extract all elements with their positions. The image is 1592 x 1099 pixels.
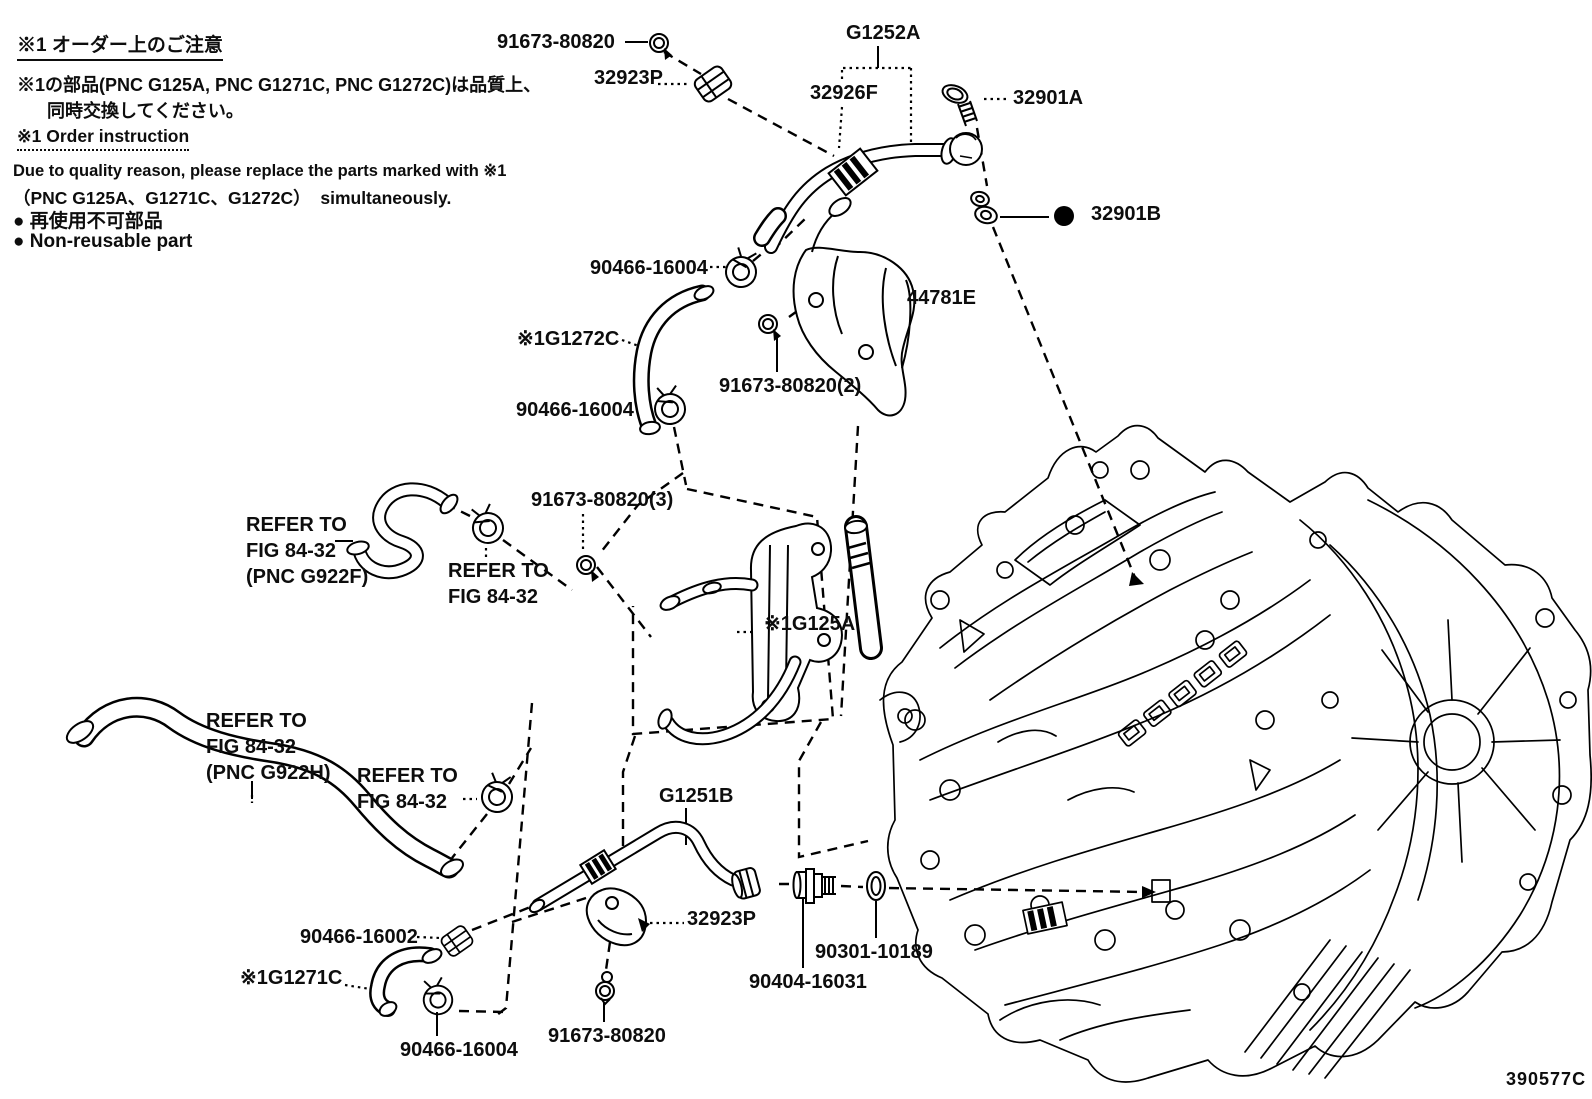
clamp-icon-90466-16004-c [419,975,456,1017]
part-label-90466-16002: 90466-16002 [300,926,418,949]
refer-note-mid: REFER TO FIG 84-32 [448,558,549,610]
part-label-g1251b: G1251B [659,785,734,808]
hose-g1271c [377,946,443,1018]
refer-note-g922f: REFER TO FIG 84-32 (PNC G922F) [246,512,368,590]
part-label-90466-16004-b: 90466-16004 [516,399,634,422]
note-jp-line2: 同時交換してください。 [47,97,244,123]
bracket-32923p-bottom [587,888,650,945]
part-label-90404-16031: 90404-16031 [749,971,867,994]
clamp-icon-refer-bottom [480,772,516,815]
clamp-icon-90466-16004-a [723,246,762,290]
part-label-44781e: 44781E [907,287,976,310]
washer-icons-32901b [969,190,998,226]
figure-number: 390577C [1506,1069,1586,1090]
transmission-illustration [880,426,1591,1082]
clamp-icon-32923p-top [692,64,733,104]
part-label-91673-80820-top: 91673-80820 [497,31,615,54]
bolt-icon-32901a [940,82,977,126]
part-label-g1272c: ※1G1272C [517,328,619,351]
part-label-90466-16004-a: 90466-16004 [590,257,708,280]
non-reusable-bullet-32901b [1054,206,1074,226]
part-label-32901a: 32901A [1013,87,1083,110]
union-fitting-90404-16031 [794,869,837,903]
part-label-90301-10189: 90301-10189 [815,941,933,964]
bolt-icon-3 [577,556,599,582]
note-jp-line1: ※1の部品(PNC G125A, PNC G1271C, PNC G1272C)… [17,71,541,97]
bolt-icon-top [650,34,672,60]
bolt-icon-bottom [596,972,614,1004]
part-label-32923p-bottom: 32923P [687,908,756,931]
part-label-32926f: 32926F [810,82,878,105]
note-en-line1: Due to quality reason, please replace th… [13,161,506,181]
note-jp-non-reusable: ● 再使用不可部品 [13,206,163,233]
refer-note-g922h: REFER TO FIG 84-32 (PNC G922H) [206,708,330,786]
oil-pipe-g1252a [762,133,982,247]
note-en-non-reusable: ● Non-reusable part [13,231,192,253]
part-label-91673-80820-bottom: 91673-80820 [548,1025,666,1048]
bolt-icon-2 [759,315,781,341]
note-jp-title: ※1 オーダー上のご注意 [17,30,223,57]
part-label-32923p-top: 32923P [594,67,663,90]
part-label-g1271c: ※1G1271C [240,967,342,990]
part-label-91673-80820-2: 91673-80820(2) [719,375,861,398]
part-label-g1252a: G1252A [846,22,921,45]
part-label-g125a: ※1G125A [764,613,855,636]
part-label-91673-80820-3: 91673-80820(3) [531,489,673,512]
part-label-90466-16004-c: 90466-16004 [400,1039,518,1062]
parts-diagram-page: ※1 オーダー上のご注意 ※1の部品(PNC G125A, PNC G1271C… [0,0,1592,1099]
note-en-title: ※1 Order instruction [17,126,189,147]
clamp-icon-refer-mid [466,501,507,547]
part-label-32901b: 32901B [1091,203,1161,226]
oil-pipe-g1251b [528,827,761,914]
refer-note-bottom: REFER TO FIG 84-32 [357,763,458,815]
clamp-icon-90466-16004-b [651,384,687,427]
clamp-icon-90466-16002 [440,924,475,958]
o-ring-90301-10189 [867,872,885,900]
